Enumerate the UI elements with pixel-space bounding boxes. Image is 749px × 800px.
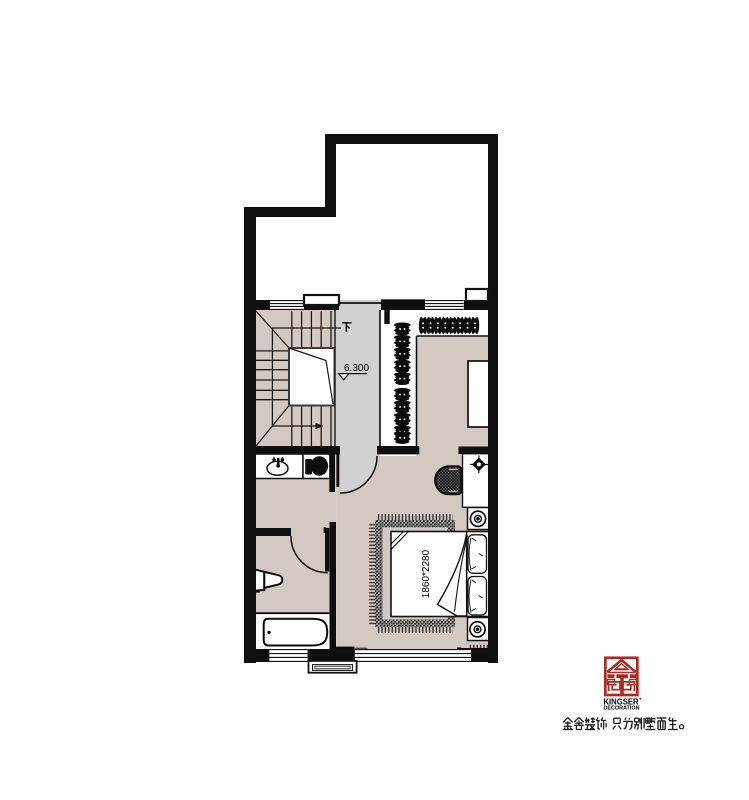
svg-text:1860*2280: 1860*2280 xyxy=(421,549,432,598)
svg-text:DECORATION: DECORATION xyxy=(604,706,640,712)
svg-text:6.300: 6.300 xyxy=(344,363,369,374)
